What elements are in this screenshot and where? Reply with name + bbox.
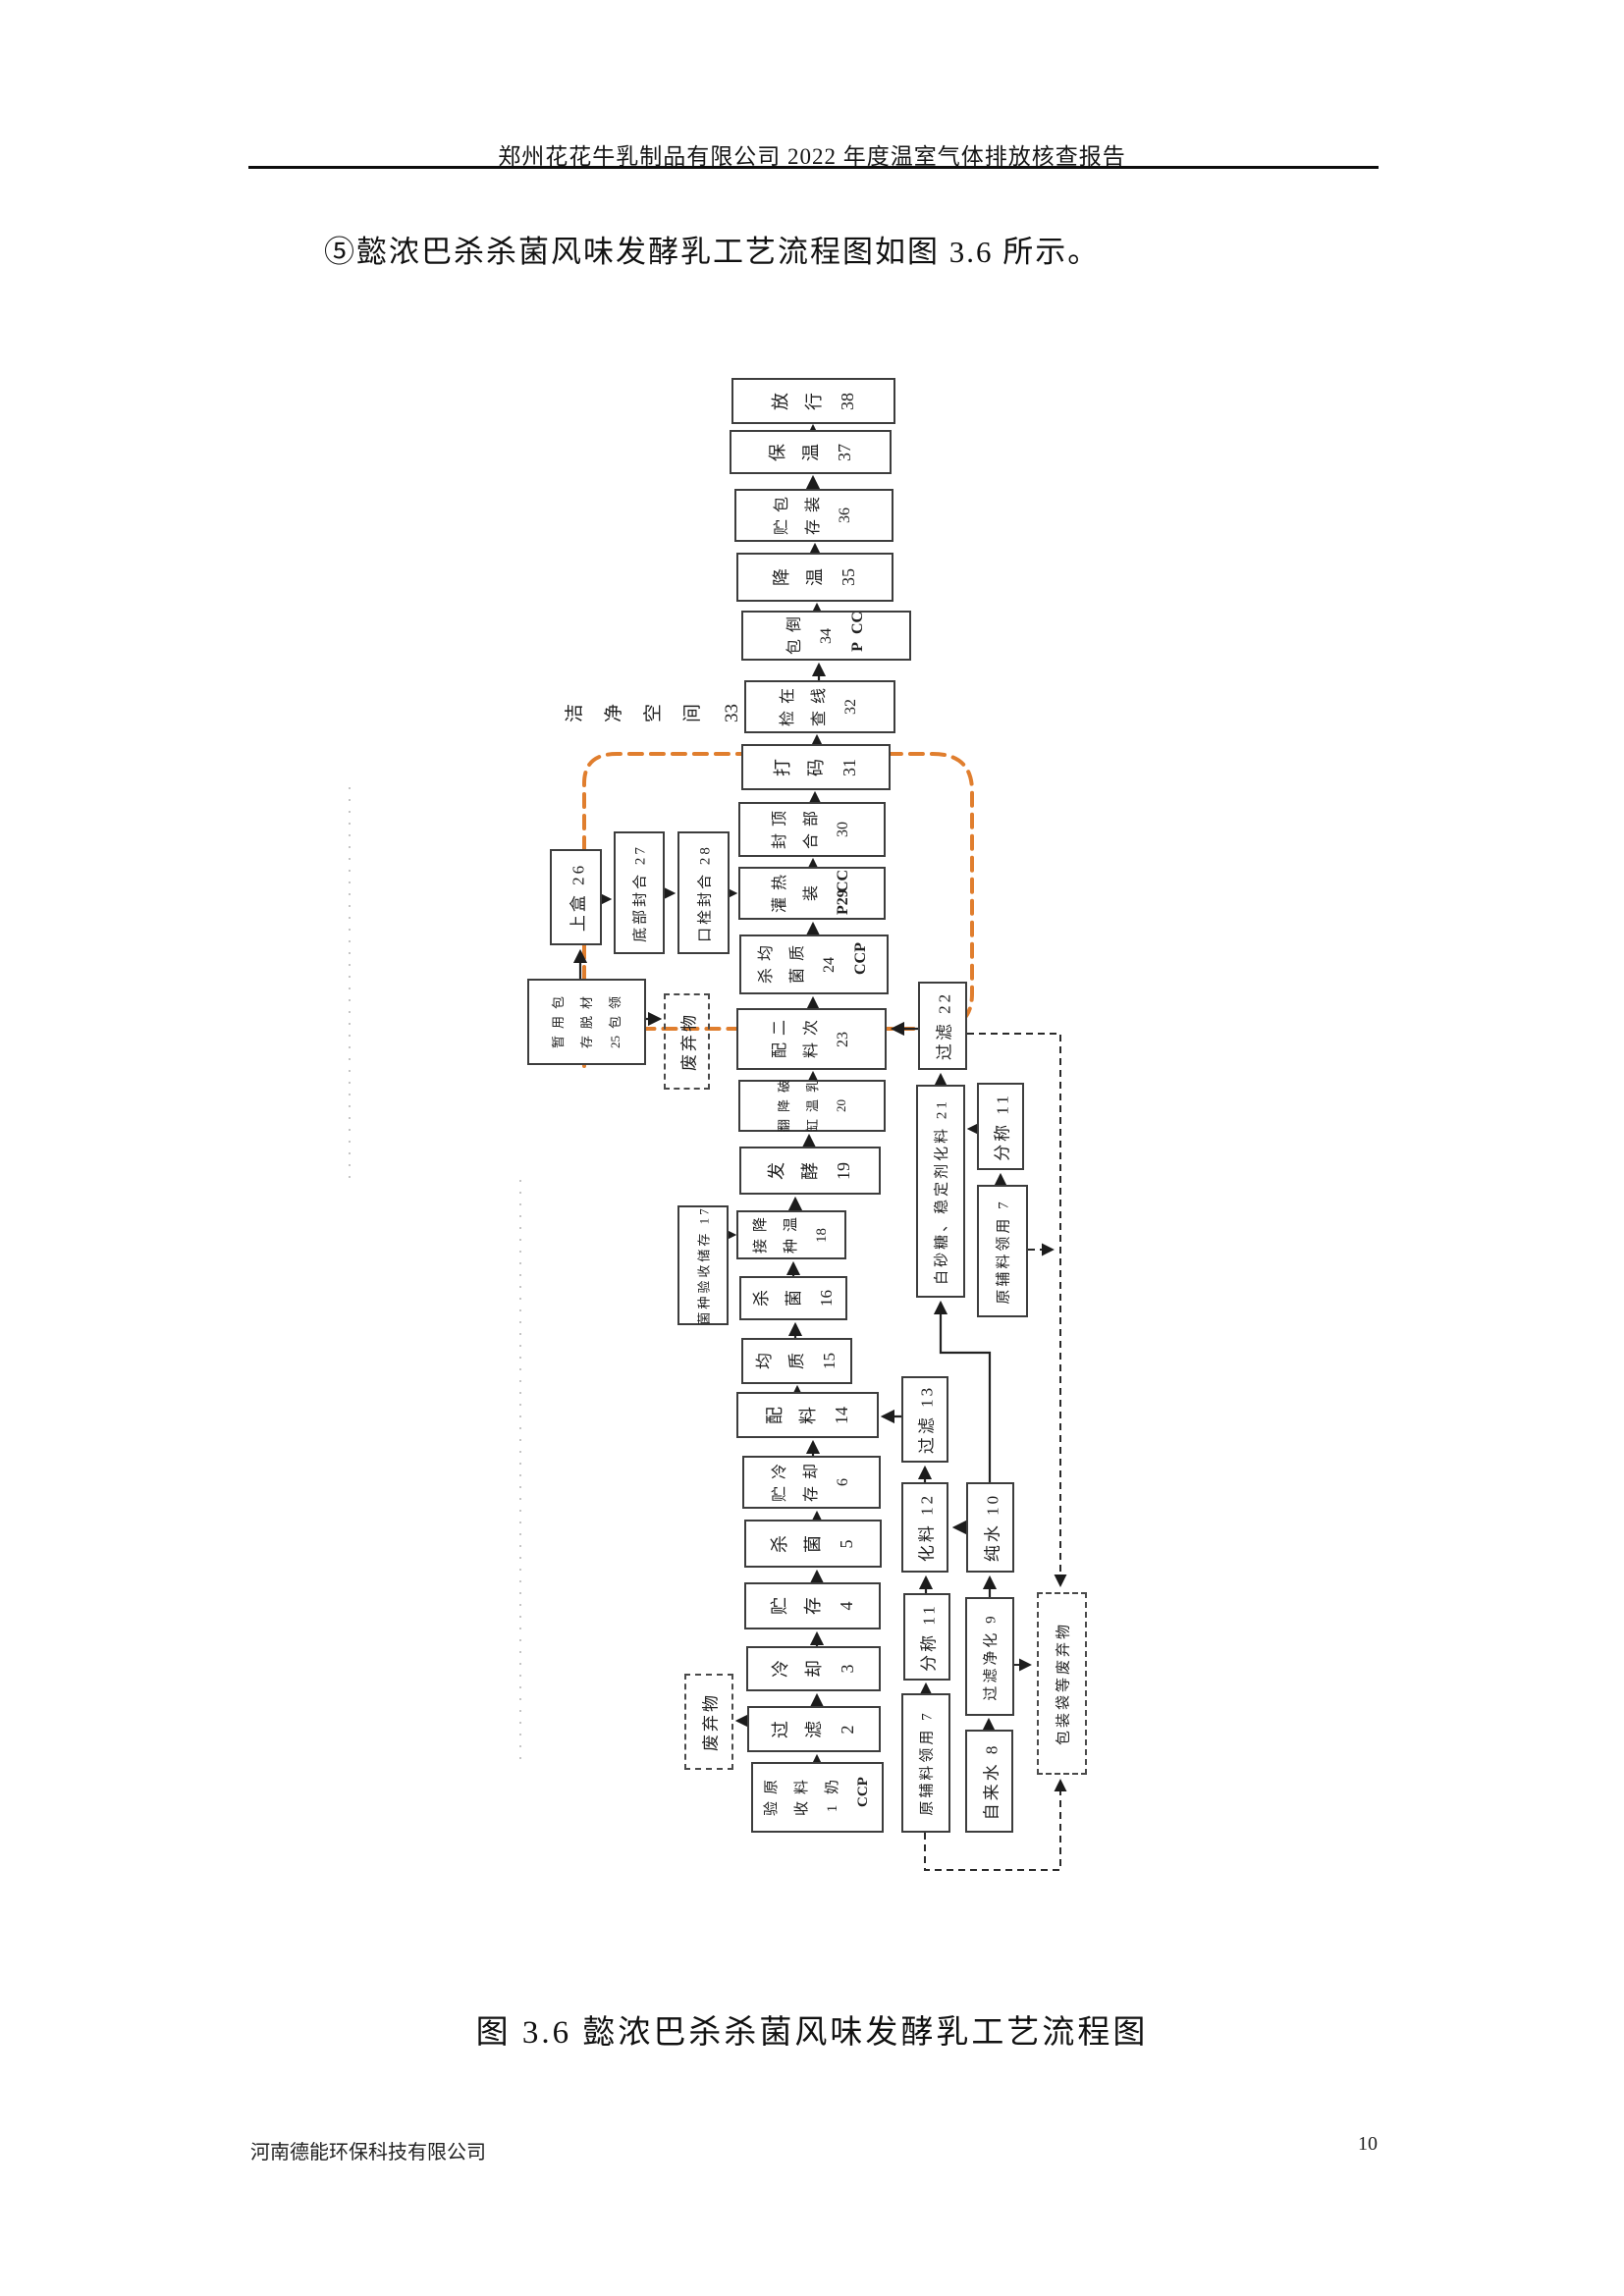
weighing-11-upper: 分称 11 (977, 1083, 1024, 1170)
flowchart: 洁净空间33放行38保温37包贮装存36降温35倒包34CCP在检线查32打码3… (0, 0, 1624, 2296)
homogenize-15: 均质15 (741, 1338, 852, 1384)
report-page: 郑州花花牛乳制品有限公司 2022 年度温室气体排放核查报告 ⑤懿浓巴杀杀菌风味… (0, 0, 1624, 2296)
filtration-2: 过滤2 (747, 1706, 881, 1752)
packaging-material-unpacking-25: 包用暂材脱存领包25 (527, 979, 646, 1065)
demulsify-cool-tank-20: 破降翻乳温缸20 (738, 1080, 886, 1132)
page-number: 10 (1358, 2133, 1378, 2156)
waste-middle: 废弃物 (664, 993, 710, 1090)
figure-caption: 图 3.6 懿浓巴杀杀菌风味发酵乳工艺流程图 (0, 2005, 1624, 2053)
online-inspection-32: 在检线查32 (744, 680, 895, 733)
culture-acceptance-storage-17: 菌种验收储存 17 (677, 1205, 729, 1325)
filtration-22: 过滤 22 (918, 982, 967, 1070)
storage-4: 贮存4 (744, 1582, 881, 1629)
batching-14: 配料14 (736, 1392, 879, 1438)
scan-artifact-lines (350, 787, 520, 1767)
tap-water-8: 自来水 8 (965, 1730, 1013, 1833)
filtration-purification-9: 过滤净化 9 (965, 1597, 1014, 1716)
sterilize-16: 杀菌16 (739, 1276, 847, 1320)
release-38: 放行38 (731, 378, 895, 424)
clean-room-label: 洁净空间33 (565, 692, 741, 733)
bottom-sealing-27: 底部封合 27 (614, 831, 665, 954)
fermentation-19: 发酵19 (739, 1147, 881, 1195)
secondary-batching-23: 二配次料23 (736, 1008, 887, 1070)
sterilize-5: 杀菌5 (744, 1520, 882, 1568)
waste-bottom-left: 废弃物 (684, 1674, 733, 1770)
heat-hold-37: 保温37 (730, 430, 892, 474)
raw-aux-material-requisition-7-lower: 原辅料领用 7 (901, 1693, 950, 1833)
sugar-stabilizer-dissolving-21: 白砂糖、稳定剂化料 21 (916, 1085, 965, 1298)
pure-water-10: 纯水 10 (966, 1482, 1014, 1573)
raw-milk-acceptance-1-ccp: 原验料收奶1CCP (751, 1762, 884, 1833)
footer-company: 河南德能环保科技有限公司 (250, 2136, 486, 2164)
cooling-35: 降温35 (736, 553, 893, 602)
raw-aux-material-requisition-7-upper: 原辅料领用 7 (977, 1185, 1028, 1317)
box-feeding-26: 上盒 26 (550, 849, 602, 945)
dissolving-12: 化料 12 (901, 1482, 948, 1573)
date-coding-31: 打码31 (741, 744, 891, 790)
repacking-34-ccp: 倒包34CCP (741, 611, 911, 661)
cooling-inoculation-18: 降接温种18 (736, 1210, 846, 1259)
filtration-13: 过滤 13 (901, 1376, 948, 1463)
homogenize-sterilize-24-ccp: 均杀质菌24CCP (739, 934, 889, 994)
hot-filling-29-ccp: 热灌装CCP29 (738, 867, 886, 920)
cooling-3: 冷却3 (746, 1646, 881, 1691)
weighing-11-lower: 分称 11 (903, 1593, 950, 1681)
spout-sealing-28: 口栓封合 28 (677, 831, 730, 954)
packaging-bag-waste: 包装袋等废弃物 (1037, 1592, 1087, 1775)
top-sealing-30: 顶封部合30 (738, 802, 886, 857)
cooling-storage-6: 冷贮却存6 (742, 1456, 881, 1509)
packaging-storage-36: 包贮装存36 (734, 489, 893, 542)
